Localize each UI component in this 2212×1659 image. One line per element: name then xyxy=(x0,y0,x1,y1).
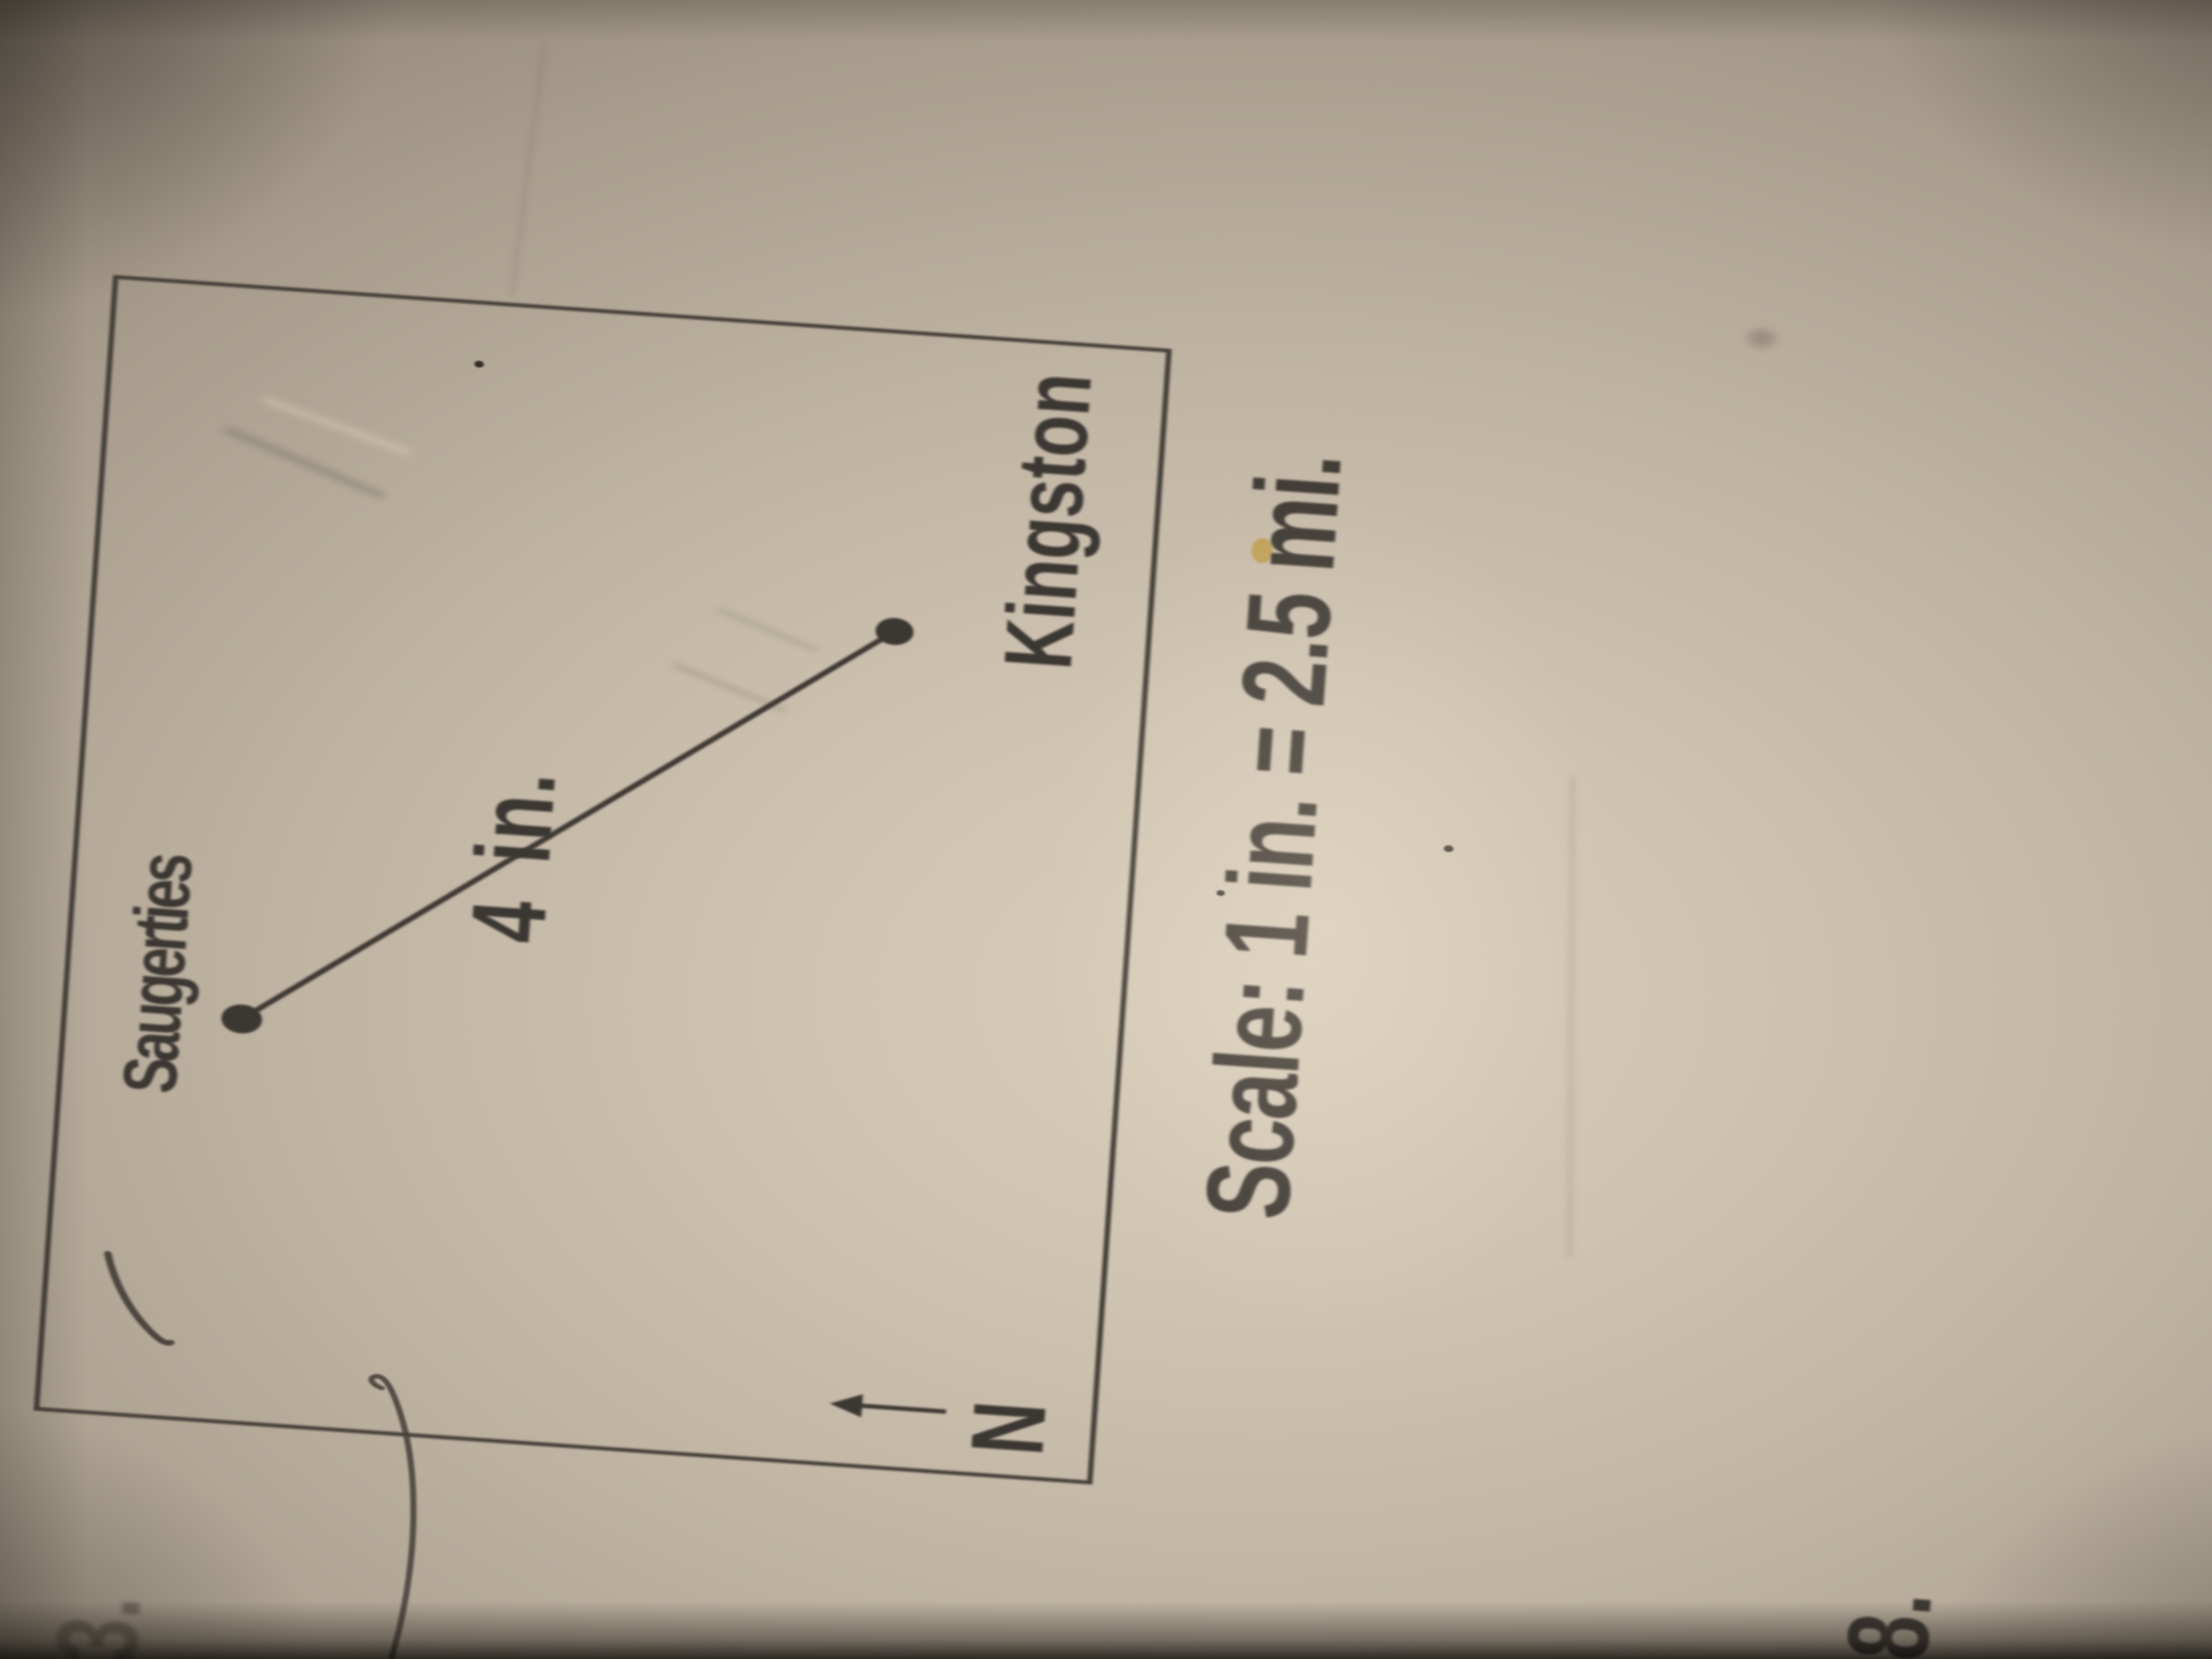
rotated-book-page: Saugerties Kingston 4 in. N Scale: 1 in.… xyxy=(0,0,2212,1659)
problem-number-3: 3. xyxy=(39,1591,159,1659)
map-figure-drawing xyxy=(0,0,2212,1659)
problem-number-8: 8. xyxy=(1830,1588,1950,1659)
north-label: N xyxy=(956,1398,1062,1458)
distance-label: 4 in. xyxy=(455,766,571,945)
north-arrow-icon xyxy=(829,1392,947,1423)
saugerties-label: Saugerties xyxy=(112,854,204,1096)
kingston-label: Kingston xyxy=(990,370,1107,672)
photo-of-textbook-page: Saugerties Kingston 4 in. N Scale: 1 in.… xyxy=(0,0,2212,1659)
